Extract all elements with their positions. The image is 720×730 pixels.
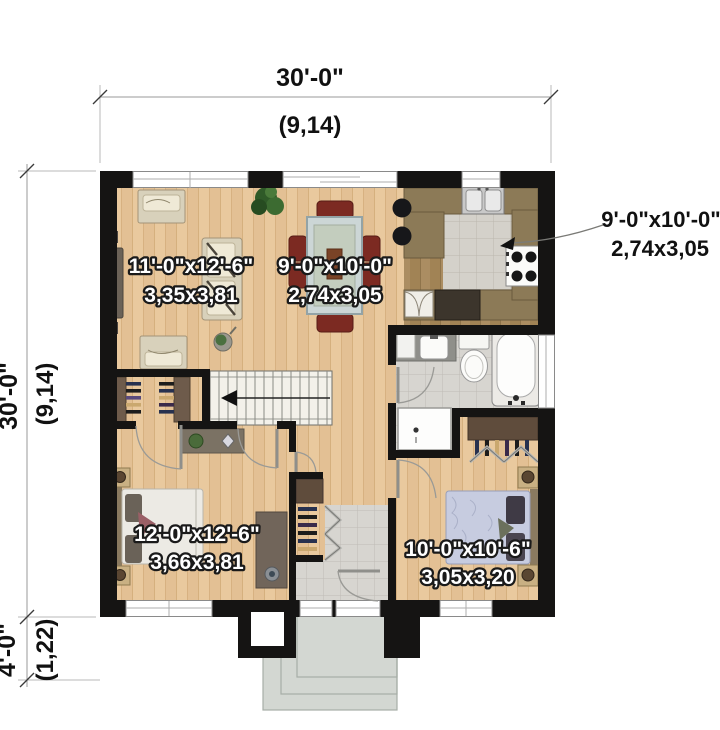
window-dining [283,172,397,188]
shower-drain-icon [413,427,418,432]
master-dresser [256,512,287,588]
dining-chair [317,314,353,332]
bedroom2-label: 10'-0"x10'-6" [405,538,531,561]
floor-plan-page: 30'-0" (9,14) 30'-0" (9,14) 4'-0" (1,22)… [0,0,720,730]
sofa [202,238,242,320]
wall-left [100,171,117,617]
hall-console [182,429,244,453]
stove [506,246,540,286]
bedroom2-label-metric: 3,05x3,20 [421,566,514,589]
master-bedroom-label-metric: 3,66x3,81 [150,551,244,574]
armchair-bottom [140,336,187,369]
porch-column-opening [251,612,284,646]
dining-room-label-metric: 2,74x3,05 [288,284,382,307]
shower [398,408,451,450]
armchair-top [138,190,185,223]
living-room-label: 11'-0"x12'-6" [129,255,253,278]
porch-column-right [384,600,420,658]
dim-depth-imperial: 30'-0" [0,362,23,430]
living-room-label-metric: 3,35x3,81 [144,284,238,307]
kitchen-island [435,290,480,320]
stairs [210,371,332,425]
bar-stool [393,227,412,246]
window-living [133,172,248,189]
bathtub [492,328,540,406]
lamp-icon [522,471,534,483]
dim-width-imperial: 30'-0" [276,64,344,92]
window-bathroom [539,335,555,408]
dim-porch-imperial: 4'-0" [0,623,21,677]
window-bedroom2 [440,601,492,617]
bathroom-sink [420,336,448,359]
tub-faucet-icon [513,395,519,401]
floor-plan-drawing: 30'-0" (9,14) 30'-0" (9,14) 4'-0" (1,22)… [0,0,720,730]
pillow [506,496,525,524]
window-master [126,601,212,617]
entry-sidelight [300,601,332,617]
window-kitchen [462,172,500,188]
bar-stool [393,199,412,218]
kitchen-tile [443,210,512,298]
master-bedroom-label: 12'-0"x12'-6" [134,523,260,546]
lamp-icon [522,569,534,581]
dim-depth-metric: (9,14) [32,363,59,426]
kitchen-label-metric: 2,74x3,05 [611,236,709,261]
toilet [459,334,489,382]
dim-porch-metric: (1,22) [32,619,59,682]
bathroom-vanity [396,333,456,361]
entry-door-opening [336,601,380,617]
kitchen-label: 9'-0"x10'-0" [601,207,720,232]
dim-width-metric: (9,14) [279,112,342,139]
dining-room-label: 9'-0"x10'-0" [278,255,392,278]
kitchen-sink [462,186,504,214]
